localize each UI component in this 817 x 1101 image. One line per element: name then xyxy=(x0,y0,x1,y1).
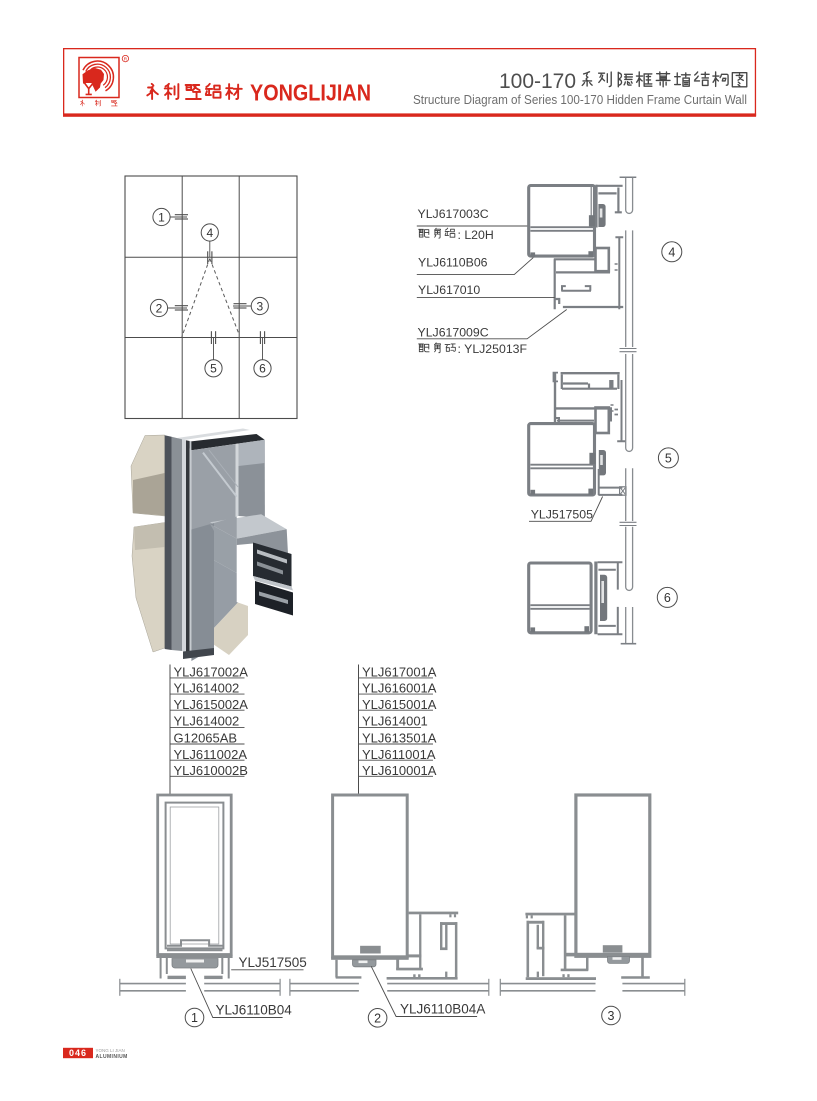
svg-text:YLJ613501A: YLJ613501A xyxy=(362,731,437,746)
svg-text:YLJ614002: YLJ614002 xyxy=(174,714,240,729)
svg-text:YLJ617001A: YLJ617001A xyxy=(362,665,437,680)
svg-text:YLJ6110B04A: YLJ6110B04A xyxy=(400,1002,485,1017)
svg-text:6: 6 xyxy=(259,362,266,376)
svg-text:: YLJ25013F: : YLJ25013F xyxy=(458,342,528,356)
svg-text:YLJ610001A: YLJ610001A xyxy=(362,763,437,778)
svg-text:2: 2 xyxy=(156,301,163,315)
svg-text:5: 5 xyxy=(665,451,672,465)
svg-text:1: 1 xyxy=(191,1011,198,1025)
svg-text:YLJ617010: YLJ617010 xyxy=(418,283,480,297)
svg-text:YONG LI JIAN: YONG LI JIAN xyxy=(96,1048,125,1053)
svg-text:YLJ517505: YLJ517505 xyxy=(239,955,307,970)
svg-text:YLJ617003C: YLJ617003C xyxy=(418,207,489,221)
svg-text:YLJ615001A: YLJ615001A xyxy=(362,697,437,712)
svg-text:YONGLIJIAN: YONGLIJIAN xyxy=(250,80,371,106)
svg-text:1: 1 xyxy=(158,210,165,224)
svg-text:: L20H: : L20H xyxy=(458,228,494,242)
svg-text:YLJ614002: YLJ614002 xyxy=(174,681,240,696)
svg-text:3: 3 xyxy=(608,1009,615,1023)
svg-text:100-170: 100-170 xyxy=(499,69,576,93)
svg-text:YLJ617009C: YLJ617009C xyxy=(418,325,489,339)
svg-text:G12065AB: G12065AB xyxy=(174,731,238,746)
svg-text:4: 4 xyxy=(206,226,213,240)
svg-text:YLJ610002B: YLJ610002B xyxy=(174,763,248,778)
svg-text:Structure Diagram of Series 10: Structure Diagram of Series 100-170 Hidd… xyxy=(413,93,747,107)
svg-text:6: 6 xyxy=(664,591,671,605)
svg-text:5: 5 xyxy=(210,362,217,376)
svg-text:YLJ6110B06: YLJ6110B06 xyxy=(418,256,488,270)
svg-text:R: R xyxy=(124,56,128,62)
svg-text:ALUMINIUM: ALUMINIUM xyxy=(96,1054,128,1060)
svg-text:YLJ611002A: YLJ611002A xyxy=(174,747,248,762)
svg-text:YLJ617002A: YLJ617002A xyxy=(174,665,249,680)
svg-text:4: 4 xyxy=(668,245,675,259)
svg-text:YLJ6110B04: YLJ6110B04 xyxy=(216,1003,293,1018)
svg-text:3: 3 xyxy=(256,299,263,313)
svg-text:046: 046 xyxy=(69,1048,87,1058)
svg-text:2: 2 xyxy=(374,1011,381,1025)
svg-text:YLJ616001A: YLJ616001A xyxy=(362,681,437,696)
svg-text:YLJ611001A: YLJ611001A xyxy=(362,747,436,762)
svg-text:YLJ615002A: YLJ615002A xyxy=(174,697,249,712)
svg-text:YLJ517505: YLJ517505 xyxy=(531,508,593,522)
svg-text:YLJ614001: YLJ614001 xyxy=(362,714,428,729)
